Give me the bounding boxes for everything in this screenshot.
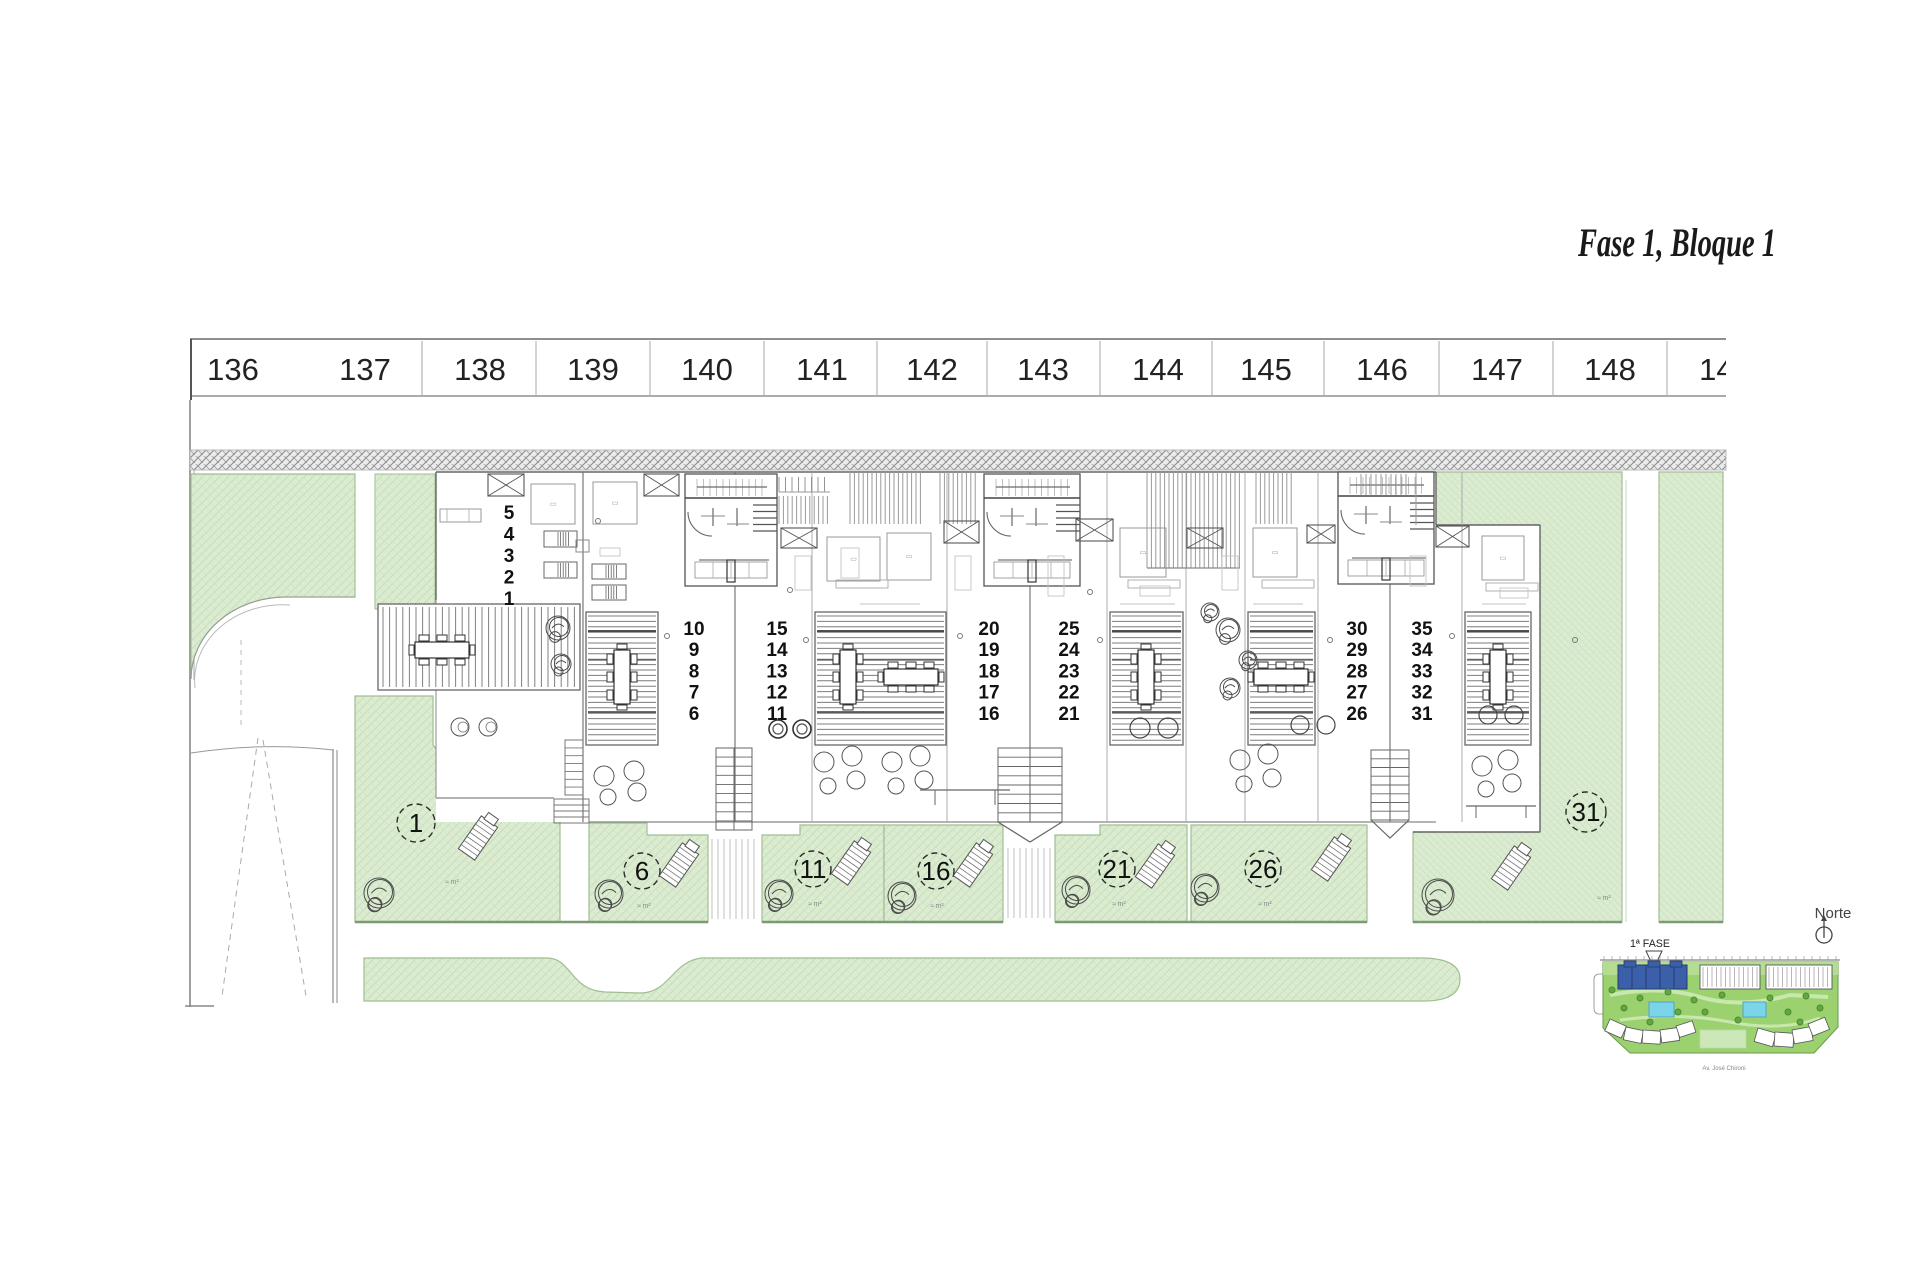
svg-text:23: 23 <box>1058 661 1079 682</box>
svg-text:18: 18 <box>978 661 999 682</box>
svg-text:24: 24 <box>1058 640 1080 661</box>
svg-text:Norte: Norte <box>1815 905 1852 922</box>
svg-text:▭: ▭ <box>1272 550 1279 557</box>
svg-text:20: 20 <box>978 619 999 640</box>
svg-text:31: 31 <box>1572 797 1601 827</box>
svg-text:▭: ▭ <box>906 554 913 561</box>
svg-text:10: 10 <box>683 619 704 640</box>
svg-text:6: 6 <box>689 704 700 725</box>
svg-text:7: 7 <box>689 683 700 704</box>
svg-text:136: 136 <box>207 352 259 387</box>
svg-text:6: 6 <box>635 856 649 886</box>
svg-text:17: 17 <box>978 683 999 704</box>
svg-text:138: 138 <box>454 352 506 387</box>
svg-text:≈ m²: ≈ m² <box>1258 901 1272 908</box>
svg-text:5: 5 <box>504 503 515 524</box>
svg-text:≈ m²: ≈ m² <box>445 879 459 886</box>
svg-text:29: 29 <box>1346 640 1367 661</box>
svg-text:▭: ▭ <box>1140 550 1147 557</box>
svg-text:33: 33 <box>1411 661 1432 682</box>
svg-text:▭: ▭ <box>850 556 857 563</box>
svg-text:≈ m²: ≈ m² <box>808 901 822 908</box>
svg-text:148: 148 <box>1584 352 1636 387</box>
svg-text:31: 31 <box>1411 704 1433 725</box>
svg-text:25: 25 <box>1058 619 1080 640</box>
svg-text:13: 13 <box>766 661 787 682</box>
svg-text:15: 15 <box>766 619 788 640</box>
svg-text:26: 26 <box>1249 854 1278 884</box>
svg-text:1: 1 <box>409 808 423 838</box>
svg-text:14: 14 <box>766 640 788 661</box>
svg-text:139: 139 <box>567 352 619 387</box>
svg-text:12: 12 <box>766 683 787 704</box>
svg-text:21: 21 <box>1058 704 1080 725</box>
svg-text:35: 35 <box>1411 619 1433 640</box>
svg-text:Av. José Chironi: Av. José Chironi <box>1702 1066 1745 1072</box>
svg-text:≈ m²: ≈ m² <box>1597 895 1611 902</box>
svg-text:11: 11 <box>800 854 827 884</box>
svg-text:143: 143 <box>1017 352 1069 387</box>
svg-text:28: 28 <box>1346 661 1367 682</box>
svg-text:140: 140 <box>681 352 733 387</box>
svg-text:16: 16 <box>978 704 999 725</box>
svg-text:4: 4 <box>504 525 515 546</box>
svg-text:32: 32 <box>1411 683 1432 704</box>
svg-text:144: 144 <box>1132 352 1184 387</box>
svg-text:22: 22 <box>1058 683 1079 704</box>
svg-text:▭: ▭ <box>612 500 619 507</box>
svg-text:146: 146 <box>1356 352 1408 387</box>
svg-text:▭: ▭ <box>1500 555 1507 562</box>
svg-text:≈ m²: ≈ m² <box>637 903 651 910</box>
svg-text:147: 147 <box>1471 352 1523 387</box>
svg-text:≈ m²: ≈ m² <box>930 903 944 910</box>
svg-text:1ª FASE: 1ª FASE <box>1630 938 1670 950</box>
svg-text:26: 26 <box>1346 704 1367 725</box>
svg-text:≈ m²: ≈ m² <box>1112 901 1126 908</box>
svg-text:30: 30 <box>1346 619 1367 640</box>
svg-text:16: 16 <box>922 856 951 886</box>
svg-text:2: 2 <box>504 568 515 589</box>
svg-text:27: 27 <box>1346 683 1367 704</box>
svg-text:141: 141 <box>796 352 848 387</box>
svg-text:8: 8 <box>689 661 700 682</box>
svg-text:1: 1 <box>504 589 515 610</box>
svg-text:145: 145 <box>1240 352 1292 387</box>
svg-text:19: 19 <box>978 640 999 661</box>
svg-text:34: 34 <box>1411 640 1433 661</box>
svg-text:9: 9 <box>689 640 700 661</box>
svg-text:▭: ▭ <box>550 501 557 508</box>
svg-text:3: 3 <box>504 546 515 567</box>
svg-text:137: 137 <box>339 352 391 387</box>
svg-text:21: 21 <box>1103 854 1132 884</box>
svg-text:142: 142 <box>906 352 958 387</box>
svg-text:Fase 1, Bloque 1: Fase 1, Bloque 1 <box>1577 220 1776 265</box>
